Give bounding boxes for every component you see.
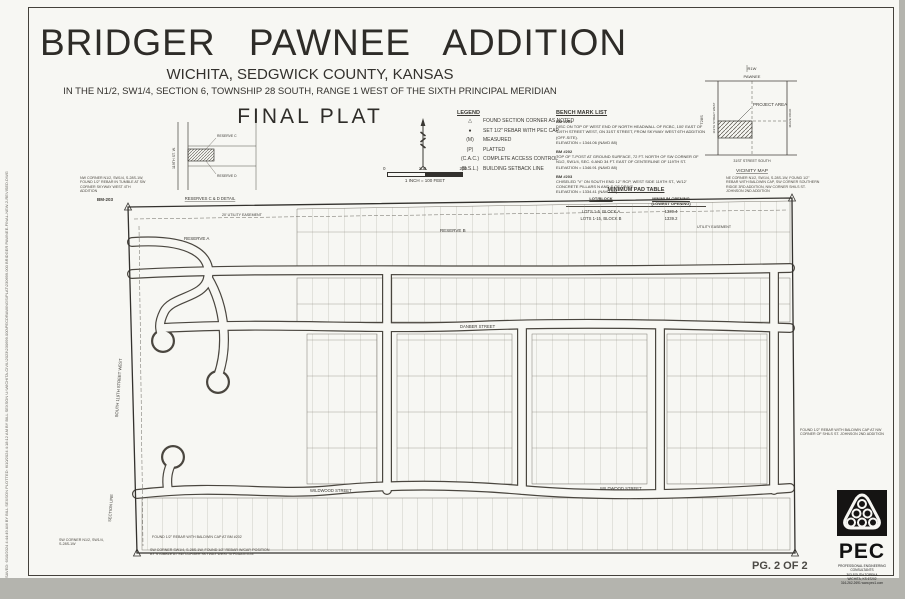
cac-symbol: (C.A.C.) <box>457 157 483 163</box>
bm-203-tag: BM-203 <box>97 197 113 202</box>
reserve-c-label: RESERVE C <box>217 134 237 138</box>
benchmark-desc: TOP OF T-POST AT GROUND SURFACE, 72 FT. … <box>556 154 706 164</box>
legend-item-label: BUILDING SETBACK LINE <box>483 167 544 173</box>
bsl-symbol: (B.S.L.) <box>457 167 483 173</box>
benchmark-item: BM #202 TOP OF T-POST AT GROUND SURFACE,… <box>556 149 706 170</box>
legend-item-label: COMPLETE ACCESS CONTROL <box>483 157 558 163</box>
rebar-point-icon: ● <box>457 129 483 135</box>
benchmark-elevation: ELEVATION = 1346.91 (NAVD 88) <box>556 165 706 170</box>
vicinity-map: R1W PAWNEE PROJECT AREA T28S 119TH STREE… <box>697 62 807 181</box>
wildwood-street-label-east: WILDWOOD STREET <box>600 486 642 491</box>
scale-bar-graphic <box>387 172 463 177</box>
page-title: BRIDGER PAWNEE ADDITION <box>40 22 580 64</box>
sw-corner-note-3: SW CORNER SW1/4, S-28S-1W, FOUND 1/2" RE… <box>150 548 275 557</box>
street-119th-label: SOUTH 119TH STREET WEST <box>114 358 123 418</box>
easement-top-label: 20' UTILITY EASEMENT <box>222 213 263 217</box>
legal-description: IN THE N1/2, SW1/4, SECTION 6, TOWNSHIP … <box>40 86 580 97</box>
pec-firm-name: PROFESSIONAL ENGINEERING CONSULTANTS <box>830 564 894 573</box>
sw-corner-note-1: SW CORNER N1/2, SW1/4, S-28S-1W <box>59 538 107 547</box>
pec-block: PEC PROFESSIONAL ENGINEERING CONSULTANTS… <box>830 490 894 586</box>
benchmark-desc: DISC ON TOP OF WEST END OF NORTH HEADWAL… <box>556 124 706 140</box>
legend-item-label: SET 1/2" REBAR WITH PEC CAP <box>483 129 559 135</box>
scale-tick-0: 0 <box>383 166 386 171</box>
vicinity-township-label: T28S <box>699 115 704 125</box>
nw-corner-note: NW CORNER N1/2, SW1/4, S-28S-1W, FOUND 1… <box>80 176 148 194</box>
section-line-label: SECTION LINE <box>107 494 114 522</box>
easement-right-label: UTILITY EASEMENT <box>697 225 732 229</box>
page-number-label: PG. 2 OF 2 <box>752 560 808 572</box>
danber-street-label: DANBER STREET <box>460 324 496 329</box>
plat-drawing: RESERVE A RESERVE B 20' UTILITY EASEMENT… <box>72 178 832 568</box>
vicinity-north-road: PAWNEE <box>744 74 761 79</box>
vicinity-south-road: 31ST STREET SOUTH <box>733 159 771 163</box>
pec-wordmark: PEC <box>830 540 894 564</box>
section-corner-icon: △ <box>457 119 483 125</box>
pec-logo-icon <box>837 490 887 536</box>
legend-item-label: PLATTED <box>483 148 505 154</box>
project-area-hatch <box>718 121 752 138</box>
drawing-file-path-text: SAVED: 6/10/2024 4:44:49 AM BY BILL SEXS… <box>4 18 9 578</box>
benchmark-item: BM #201 DISC ON TOP OF WEST END OF NORTH… <box>556 119 706 145</box>
reserve-a-label: RESERVE A <box>184 236 209 241</box>
subtitle: WICHITA, SEDGWICK COUNTY, KANSAS <box>40 66 580 83</box>
detail-street-label: 119TH ST. W. <box>172 147 176 169</box>
sw-corner-note-2: FOUND 1/2" REBAR WITH BALDWIN CAP AT BM … <box>152 535 252 539</box>
wildwood-street-label-west: WILDWOOD STREET <box>310 488 352 493</box>
legend-item-label: MEASURED <box>483 138 511 144</box>
pec-phone: 316-262-2691 www.pec1.com <box>830 581 894 585</box>
benchmark-title: BENCH MARK LIST <box>556 110 706 116</box>
measured-symbol: (M) <box>457 138 483 144</box>
platted-symbol: (P) <box>457 148 483 154</box>
vicinity-west-road: 119TH STREET WEST <box>712 102 716 133</box>
scale-ticks: 0 100 200 <box>383 166 467 171</box>
vicinity-range-label: R1W <box>748 66 757 71</box>
reserve-b-label: RESERVE B <box>440 228 466 233</box>
scale-tick-100: 100 <box>419 166 427 171</box>
ne-corner-note: NE CORNER N1/2, SW1/4, S-28S-1W, FOUND 1… <box>726 176 822 194</box>
east-corner-note: FOUND 1/2" REBAR WITH BALDWIN CAP AT NW … <box>800 428 892 437</box>
vicinity-map-title: VICINITY MAP <box>736 168 768 174</box>
project-area-label: PROJECT AREA <box>753 102 787 107</box>
benchmark-elevation: ELEVATION = 1344.06 (NAVD 88) <box>556 140 706 145</box>
vicinity-east-road: MAIZE ROAD <box>788 108 792 128</box>
